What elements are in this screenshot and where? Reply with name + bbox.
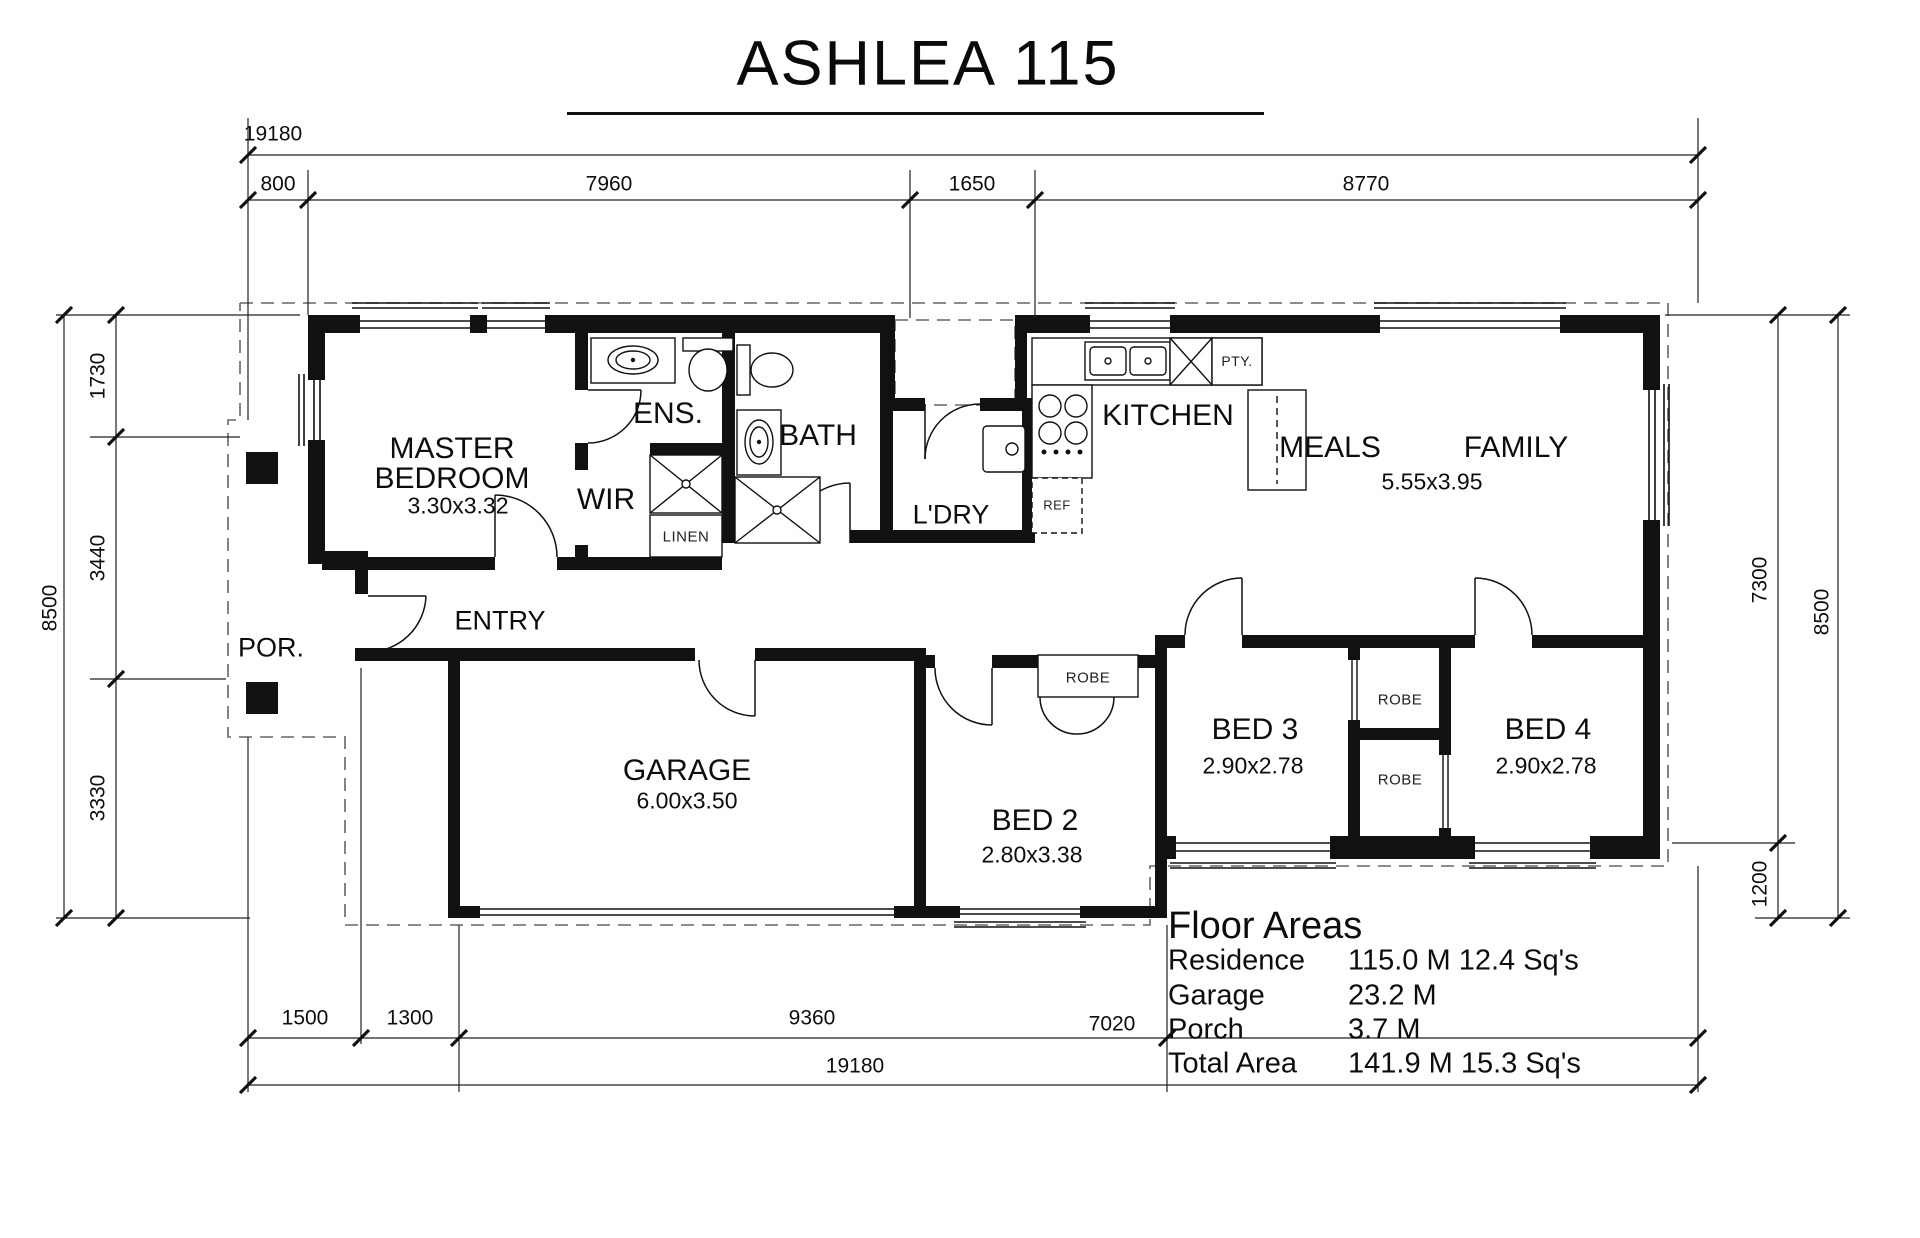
room-label-bath: BATH xyxy=(779,421,857,451)
floor-area-row-value: 23.2 M xyxy=(1348,982,1437,1011)
bath-vanity-fixture xyxy=(737,410,781,475)
dim-top-seg2: 7960 xyxy=(586,174,633,195)
robe-label-bed4: ROBE xyxy=(1378,773,1423,788)
room-size-bed4: 2.90x2.78 xyxy=(1495,755,1596,778)
floor-plan-page: ASHLEA 115 19180 800 7960 1650 8770 8500… xyxy=(0,0,1920,1238)
floor-area-row-label: Porch xyxy=(1168,1016,1244,1045)
dim-left-seg1: 1730 xyxy=(88,353,109,400)
dim-bottom-seg2: 1300 xyxy=(387,1008,434,1029)
bath-toilet-fixture xyxy=(737,345,793,395)
room-label-pantry: PTY. xyxy=(1221,354,1252,368)
floor-area-row-label: Garage xyxy=(1168,982,1265,1011)
room-size-master: 3.30x3.32 xyxy=(407,495,508,518)
room-label-laundry: L'DRY xyxy=(913,502,990,529)
porch-pillar xyxy=(246,452,278,484)
floor-area-row-label: Residence xyxy=(1168,947,1305,976)
ens-vanity-fixture xyxy=(591,338,675,383)
room-label-master-line1: MASTER xyxy=(389,434,514,464)
room-label-wir: WIR xyxy=(577,485,635,515)
room-label-bed4: BED 4 xyxy=(1505,715,1592,745)
room-label-meals: MEALS xyxy=(1279,433,1381,463)
eave-dashed-outline xyxy=(228,303,1668,925)
room-label-family: FAMILY xyxy=(1464,433,1568,463)
dimension-lines xyxy=(56,118,1850,1092)
plan-title: ASHLEA 115 xyxy=(736,33,1119,96)
room-label-kitchen: KITCHEN xyxy=(1102,401,1234,431)
floor-areas-heading: Floor Areas xyxy=(1168,907,1362,945)
room-label-linen: LINEN xyxy=(663,530,710,545)
room-label-bed2: BED 2 xyxy=(992,806,1079,836)
floor-area-row-value: 115.0 M 12.4 Sq's xyxy=(1348,947,1579,976)
dim-left-seg2: 3440 xyxy=(88,535,109,582)
bath-shower-fixture xyxy=(735,477,820,543)
title-underline xyxy=(567,112,1264,115)
dim-right-seg1: 7300 xyxy=(1750,557,1771,604)
floor-area-row-value: 141.9 M 15.3 Sq's xyxy=(1348,1050,1581,1079)
floor-area-row-value: 3.7 M xyxy=(1348,1016,1421,1045)
floor-area-row-label: Total Area xyxy=(1168,1050,1297,1079)
room-size-bed2: 2.80x3.38 xyxy=(981,844,1082,867)
room-label-garage: GARAGE xyxy=(623,756,751,786)
room-label-porch: POR. xyxy=(238,635,304,662)
dim-top-seg4: 8770 xyxy=(1343,174,1390,195)
room-size-garage: 6.00x3.50 xyxy=(636,790,737,813)
room-label-entry: ENTRY xyxy=(454,608,545,635)
dim-top-seg1: 800 xyxy=(260,174,295,195)
room-size-bed3: 2.90x2.78 xyxy=(1202,755,1303,778)
dim-right-overall: 8500 xyxy=(1812,589,1833,636)
porch-pillar xyxy=(246,682,278,714)
dim-bottom-seg3: 9360 xyxy=(789,1008,836,1029)
room-label-master-line2: BEDROOM xyxy=(374,464,529,494)
dim-left-overall: 8500 xyxy=(40,585,61,632)
room-label-fridge: REF xyxy=(1043,499,1071,512)
dim-bottom-seg4: 7020 xyxy=(1089,1014,1136,1035)
dim-bottom-seg1: 1500 xyxy=(282,1008,329,1029)
dim-bottom-overall: 19180 xyxy=(826,1056,884,1077)
room-label-bed3: BED 3 xyxy=(1212,715,1299,745)
robe-label-bed3: ROBE xyxy=(1378,693,1423,708)
kitchen-cooktop-fixture xyxy=(1032,385,1092,478)
ens-shower-fixture xyxy=(650,455,722,513)
dim-left-seg3: 3330 xyxy=(88,775,109,822)
room-size-meals-family: 5.55x3.95 xyxy=(1381,471,1482,494)
robe-label-bed2: ROBE xyxy=(1066,671,1111,686)
dim-right-seg2: 1200 xyxy=(1750,861,1771,908)
dim-top-overall: 19180 xyxy=(244,124,302,145)
laundry-tub-fixture xyxy=(983,426,1025,472)
dim-top-seg3: 1650 xyxy=(949,174,996,195)
room-label-ensuite: ENS. xyxy=(633,399,703,429)
